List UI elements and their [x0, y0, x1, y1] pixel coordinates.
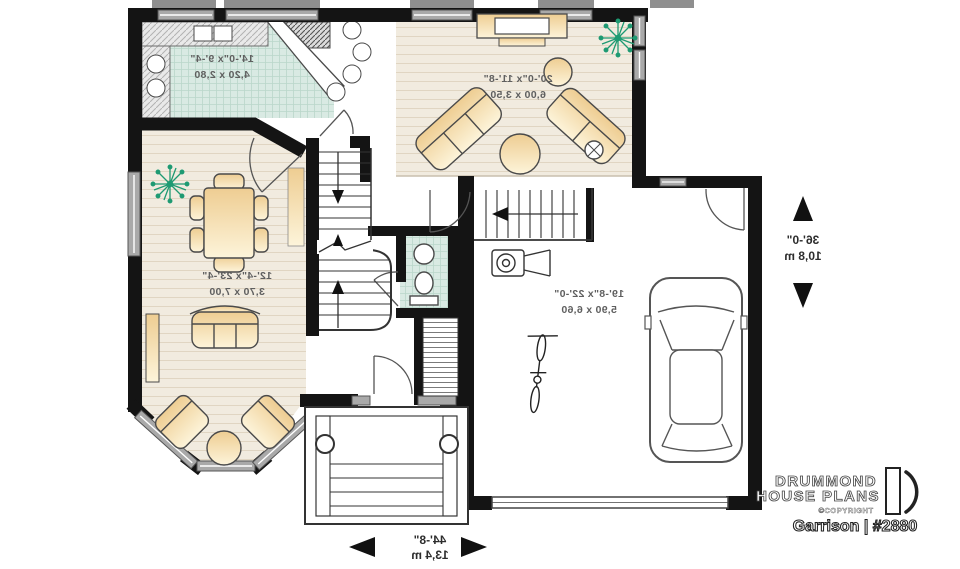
up-arrow-icon [793, 196, 813, 221]
window [634, 16, 645, 46]
right-arrow-icon [461, 537, 487, 557]
bathroom-sink [414, 244, 434, 264]
window [412, 10, 472, 20]
door-sidelight [418, 396, 456, 405]
buffet [146, 314, 159, 382]
exterior-trim [152, 0, 694, 8]
drummond-logo: DRUMMOND HOUSE PLANS ©COPYRIGHT Garrison… [756, 468, 917, 535]
powder-room-door [374, 272, 398, 306]
svg-text:4,20 x 2,80: 4,20 x 2,80 [194, 69, 250, 81]
down-arrow-icon [793, 283, 813, 308]
svg-text:44'-8": 44'-8" [414, 533, 447, 547]
cooktop-burner [147, 55, 165, 73]
garage-entry-door [706, 188, 744, 230]
plant-icon [151, 165, 189, 203]
window [660, 178, 686, 186]
window [158, 10, 214, 20]
svg-text:20'-0"x 11'-8": 20'-0"x 11'-8" [483, 73, 552, 85]
coffee-table [500, 134, 540, 174]
svg-text:14'-0"x 9'-4": 14'-0"x 9'-4" [190, 53, 254, 65]
plant-icon [599, 19, 637, 57]
window [634, 50, 645, 80]
hall-runner-rug [288, 168, 304, 246]
logo-d-icon [886, 468, 917, 514]
porch-column [316, 435, 334, 453]
floor-plan-page: 14'-0"x 9'-4" 4,20 x 2,80 20'-0"x 11'-8"… [0, 0, 960, 569]
car [645, 278, 747, 462]
floor-lamp [585, 141, 603, 159]
logo-copyright: ©COPYRIGHT [818, 506, 873, 515]
svg-text:13,4 m: 13,4 m [411, 548, 448, 562]
width-dimension: 44'-8" 13,4 m [349, 533, 487, 562]
svg-text:12'-4"x 23'-4": 12'-4"x 23'-4" [202, 270, 272, 282]
garage-staircase [474, 188, 592, 240]
side-chair [190, 196, 204, 220]
settee [190, 306, 260, 348]
bicycle [518, 332, 557, 414]
logo-company-line2: HOUSE PLANS [756, 488, 880, 505]
depth-dimension: 36'-0" 10,8 m [784, 196, 821, 308]
svg-text:36'-0": 36'-0" [787, 233, 820, 247]
garage-door [492, 497, 728, 508]
svg-text:5,90 x 6,60: 5,90 x 6,60 [561, 304, 617, 316]
round-table [207, 431, 241, 465]
floor-plan: 14'-0"x 9'-4" 4,20 x 2,80 20'-0"x 11'-8"… [0, 0, 960, 569]
bar-stool [343, 21, 361, 39]
entry-closet-shelves [423, 318, 458, 396]
window [128, 172, 140, 256]
plan-name: Garrison | #2880 [793, 518, 918, 535]
svg-text:6,00 x 3,50: 6,00 x 3,50 [490, 89, 546, 101]
garage-label: 19'-8"x 22'-0" 5,90 x 6,60 [554, 288, 624, 316]
svg-text:19'-8"x 22'-0": 19'-8"x 22'-0" [554, 288, 624, 300]
toilet [415, 272, 433, 294]
svg-text:3,70 x 7,00: 3,70 x 7,00 [209, 286, 265, 298]
window [226, 10, 318, 20]
dining-table [204, 188, 254, 258]
svg-text:10,8 m: 10,8 m [784, 249, 821, 263]
lawnmower [492, 250, 550, 276]
front-door [374, 356, 412, 394]
toilet-tank [410, 296, 438, 305]
left-arrow-icon [349, 537, 375, 557]
porch-column [440, 435, 458, 453]
kitchen-sink [194, 26, 212, 41]
door-sidelight [352, 396, 370, 405]
entry-porch [305, 407, 468, 524]
